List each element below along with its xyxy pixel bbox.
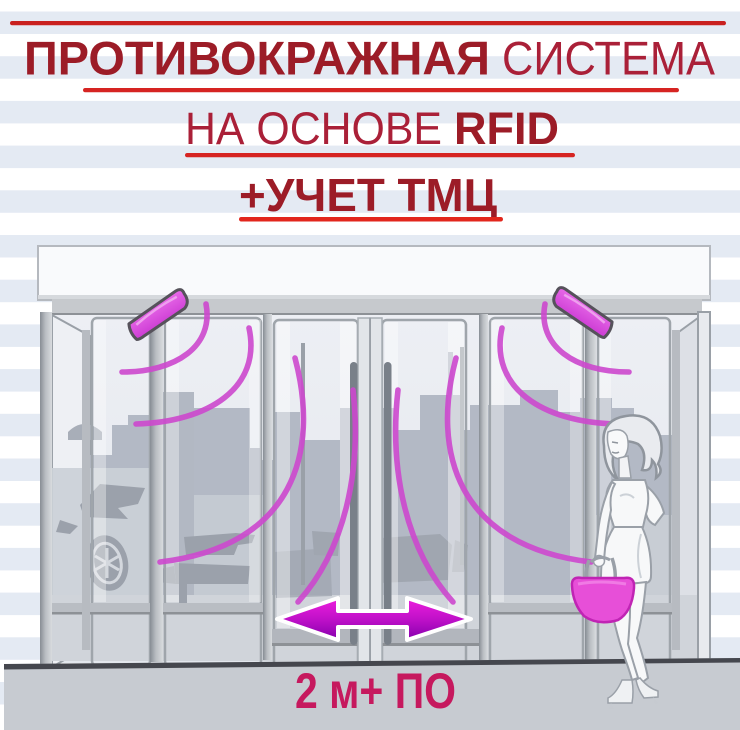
svg-text:+УЧЕТ ТМЦ: +УЧЕТ ТМЦ: [239, 169, 497, 221]
svg-text:НА ОСНОВЕ: НА ОСНОВЕ: [185, 103, 442, 154]
svg-text:ПРОТИВОКРАЖНАЯ: ПРОТИВОКРАЖНАЯ: [24, 32, 490, 85]
svg-text:RFID: RFID: [454, 103, 559, 154]
svg-text:СИСТЕМА: СИСТЕМА: [502, 32, 716, 85]
svg-text:2 м+ ПО: 2 м+ ПО: [295, 663, 456, 719]
